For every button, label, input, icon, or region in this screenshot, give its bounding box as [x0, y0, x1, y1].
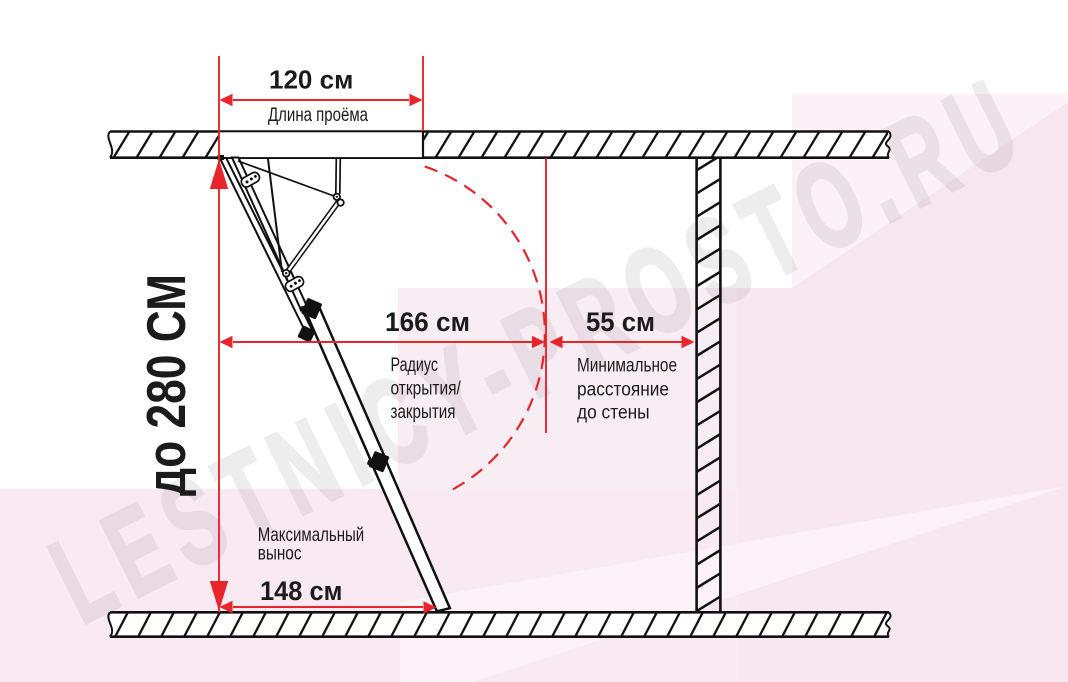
svg-text:120 см: 120 см: [269, 65, 353, 95]
svg-text:закрытия: закрытия: [391, 402, 456, 423]
svg-text:166 см: 166 см: [385, 307, 470, 337]
svg-text:Длина проёма: Длина проёма: [268, 104, 368, 126]
svg-text:до стены: до стены: [577, 403, 650, 424]
svg-text:вынос: вынос: [258, 544, 302, 565]
svg-text:открытия/: открытия/: [391, 379, 462, 400]
svg-text:до 280 СМ: до 280 СМ: [135, 274, 197, 496]
svg-text:148 см: 148 см: [260, 576, 342, 606]
svg-text:Минимальное: Минимальное: [577, 356, 677, 377]
svg-text:расстояние: расстояние: [577, 379, 669, 400]
svg-text:Радиус: Радиус: [391, 355, 439, 376]
svg-text:55 см: 55 см: [586, 307, 655, 337]
